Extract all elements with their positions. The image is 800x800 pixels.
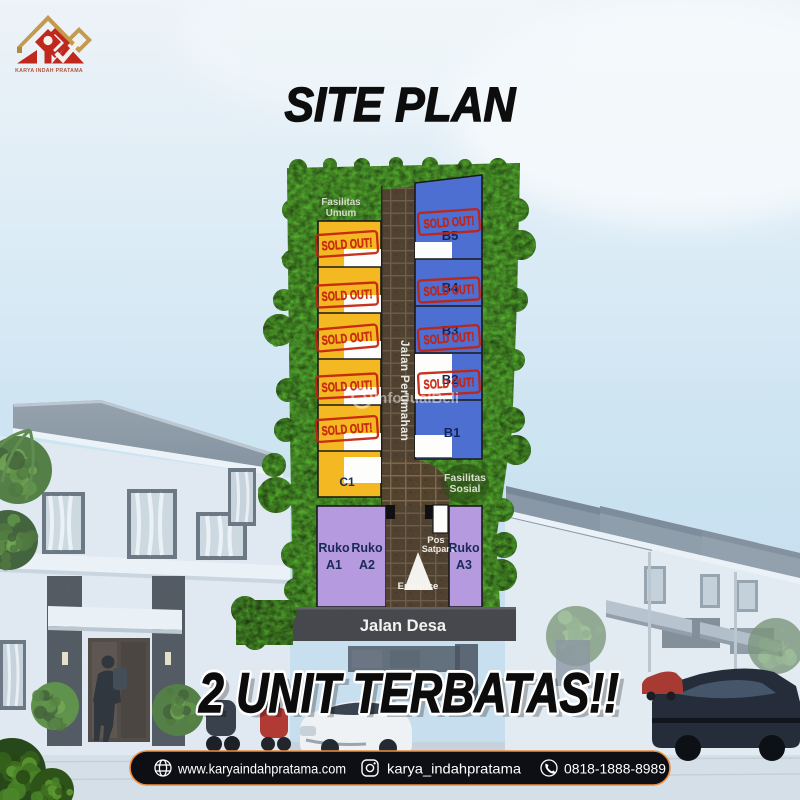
svg-text:C1: C1 (339, 475, 355, 489)
svg-text:0818-1888-8989: 0818-1888-8989 (564, 761, 666, 777)
svg-text:KARYA INDAH PRATAMA: KARYA INDAH PRATAMA (15, 68, 83, 74)
svg-text:Entrance: Entrance (398, 581, 439, 592)
svg-text:A3: A3 (456, 558, 472, 572)
svg-text:Sosial: Sosial (450, 483, 481, 495)
svg-text:www.karyaindahpratama.com: www.karyaindahpratama.com (177, 761, 346, 777)
svg-text:A2: A2 (359, 558, 375, 572)
svg-text:SITE PLAN: SITE PLAN (285, 79, 517, 132)
svg-text:Umum: Umum (326, 208, 357, 219)
svg-text:Ruko: Ruko (448, 541, 480, 555)
svg-text:Ruko: Ruko (351, 541, 383, 555)
svg-text:2 UNIT TERBATAS!!: 2 UNIT TERBATAS!! (198, 661, 619, 724)
svg-text:InfoJualBeli: InfoJualBeli (374, 390, 459, 407)
svg-text:karya_indahpratama: karya_indahpratama (387, 761, 521, 777)
svg-text:B5: B5 (442, 228, 459, 243)
svg-text:B1: B1 (444, 425, 461, 440)
svg-text:A1: A1 (326, 558, 342, 572)
svg-text:Jalan Desa: Jalan Desa (360, 617, 447, 635)
svg-text:Fasilitas: Fasilitas (321, 197, 361, 208)
svg-text:Ruko: Ruko (318, 541, 350, 555)
